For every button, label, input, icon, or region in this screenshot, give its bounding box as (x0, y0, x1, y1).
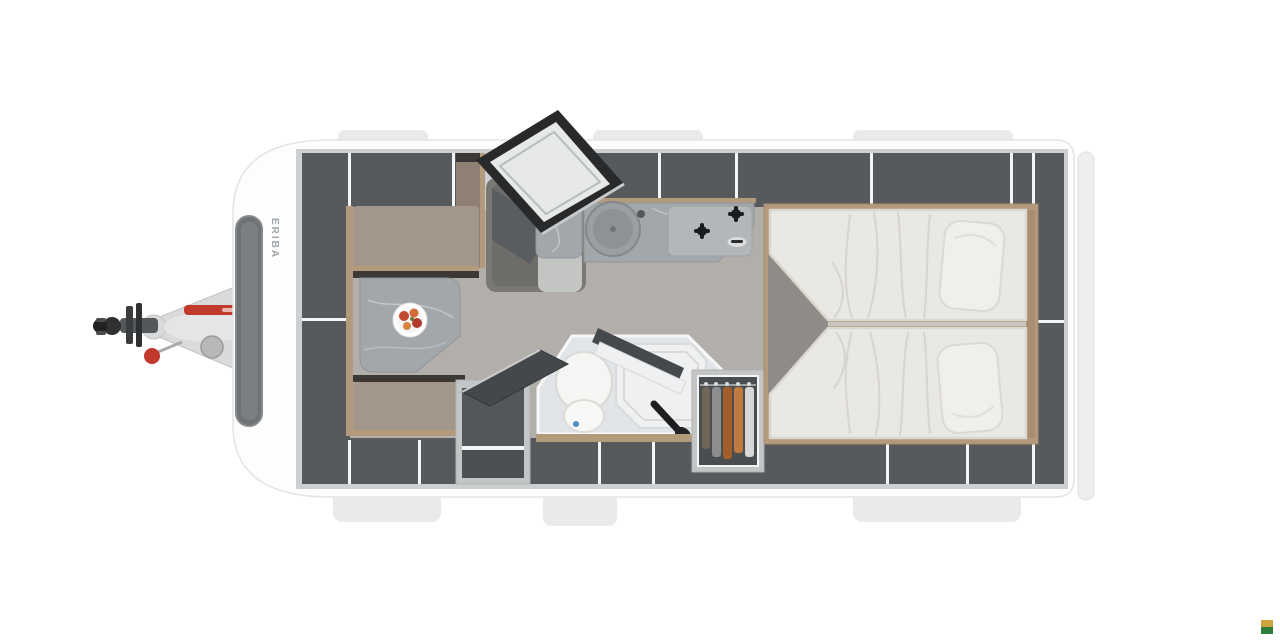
twin-beds (764, 204, 1038, 444)
faucet (637, 210, 645, 218)
floorplan-canvas: ERIBA (0, 0, 1280, 640)
jockey-wheel (201, 336, 223, 358)
sink-drain (610, 226, 616, 232)
food-plate (393, 303, 427, 337)
bench-trim (353, 266, 479, 271)
coupling-grip (126, 306, 133, 344)
cabinet-trim (480, 153, 485, 268)
coupling-pin (96, 318, 106, 322)
wardrobe (692, 370, 764, 472)
coupling-grip (136, 303, 142, 347)
dinette-bench-bottom (353, 382, 463, 432)
shelf-divider (598, 442, 601, 484)
crank-rod (158, 342, 182, 352)
brand-badge-icon (1261, 620, 1273, 634)
coupling-pin (96, 331, 106, 335)
mattress-gap (828, 322, 1026, 326)
rear-bumper (1078, 152, 1094, 500)
bench-trim (353, 430, 465, 436)
dinette-bench-top (353, 206, 479, 268)
pillow-lower (936, 342, 1003, 435)
bed-headboard (1026, 210, 1035, 438)
interior (296, 110, 1068, 489)
toilet-seat (564, 400, 604, 432)
crank-knob-red (144, 348, 160, 364)
toilet-flush-button (573, 421, 579, 427)
bench-backrest-trim (346, 206, 353, 436)
chest-divider (462, 446, 524, 450)
brand-label: ERIBA (269, 218, 280, 259)
bench-shadow (353, 375, 465, 382)
front-window-glass (241, 222, 258, 420)
chest-lower (462, 450, 524, 478)
shelf-divider (652, 442, 655, 484)
stove-handle-slot (731, 240, 743, 243)
pillow-upper (938, 220, 1005, 313)
caravan-floorplan: ERIBA (0, 0, 1280, 640)
bench-shadow (353, 271, 479, 278)
